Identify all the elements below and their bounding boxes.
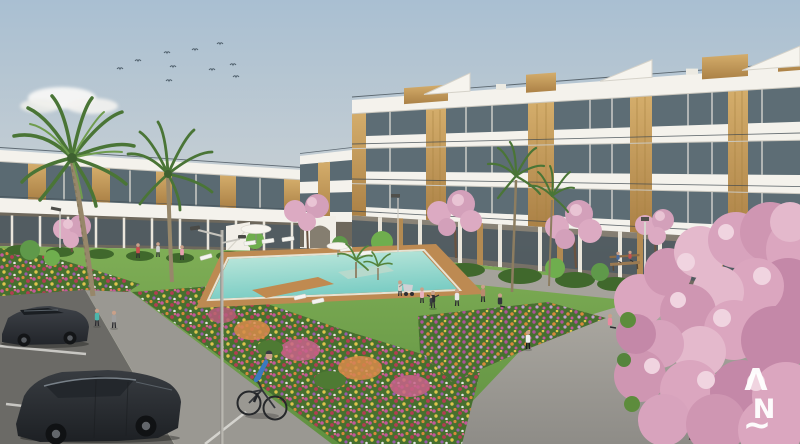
render-canvas: Λ N ~ bbox=[0, 0, 800, 444]
logo-glyph-top: Λ bbox=[744, 363, 768, 398]
car-hatchback bbox=[16, 370, 181, 444]
logo-glyph-bottom: ~ bbox=[743, 405, 772, 444]
roof-chimney bbox=[686, 69, 698, 75]
roof-chimney bbox=[496, 84, 506, 90]
